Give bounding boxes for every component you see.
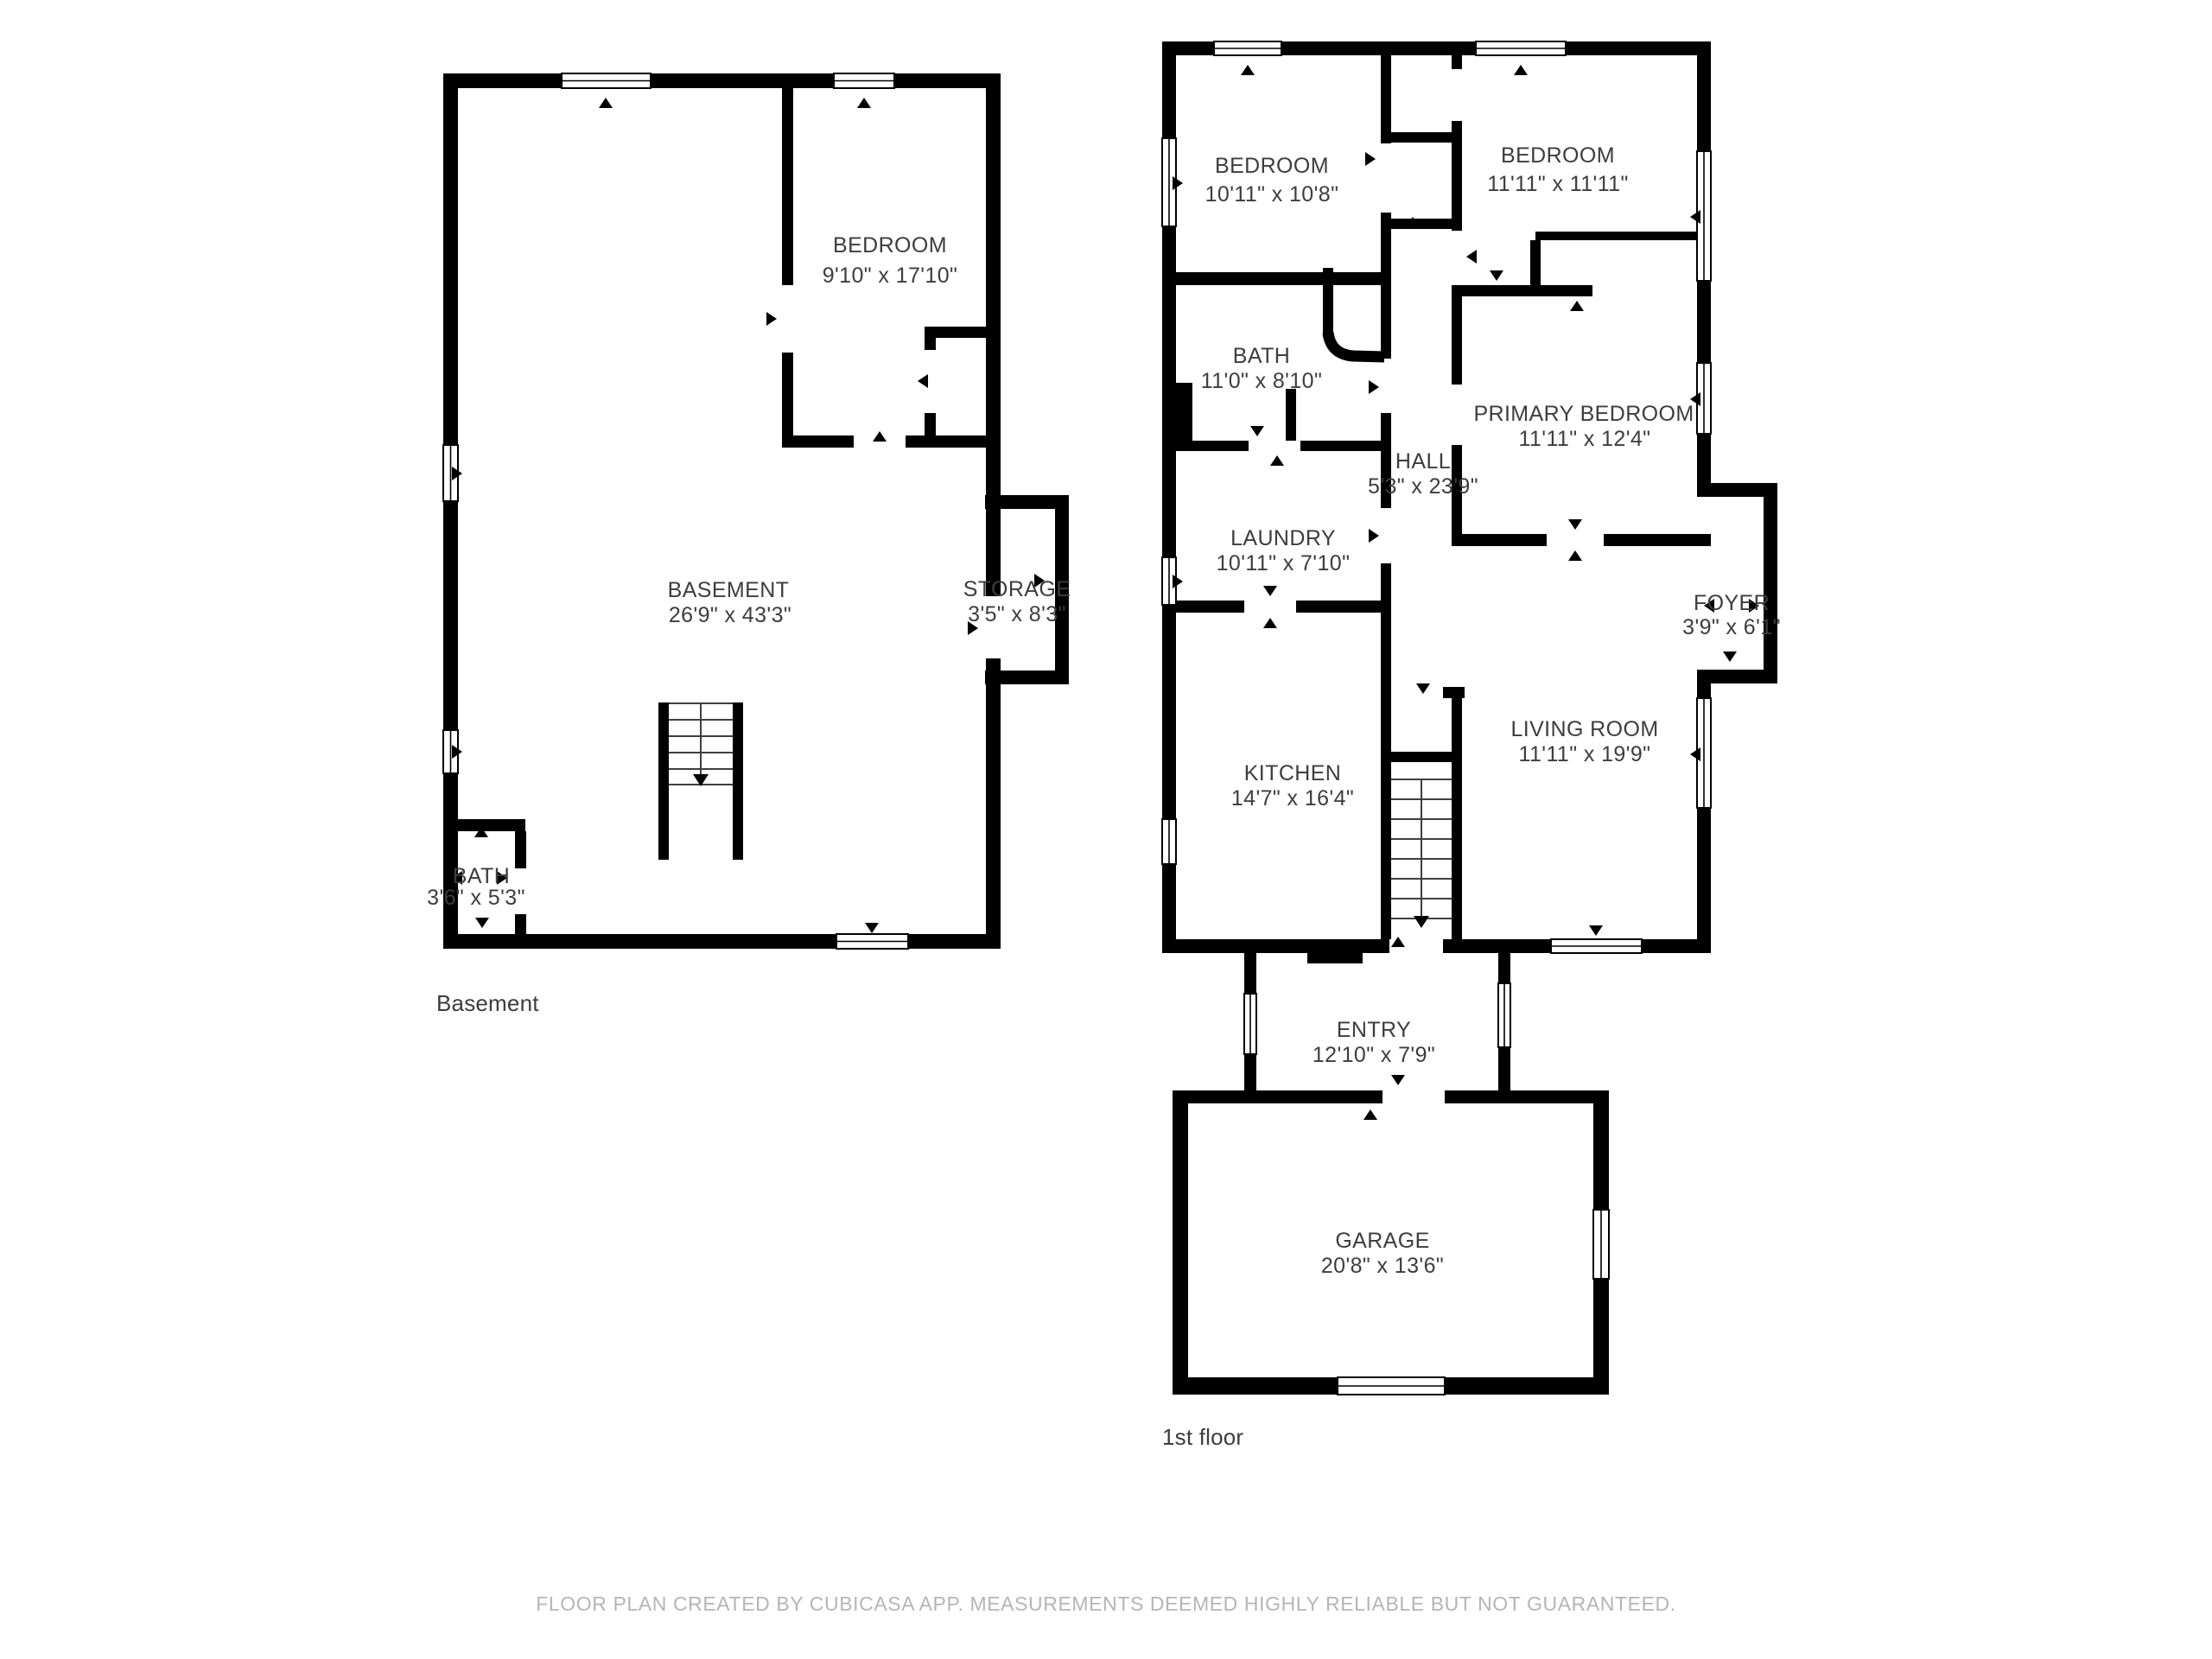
room-label-kitchen: KITCHEN — [1244, 761, 1342, 785]
room-label-laundry: LAUNDRY — [1230, 526, 1336, 550]
first-floor-plan: BEDROOM 10'11" x 10'8" BEDROOM 11'11" x … — [1162, 41, 1781, 1450]
room-dims-living-room: 11'11" x 19'9" — [1519, 742, 1651, 766]
room-dims-bath-basement: 3'6" x 5'3" — [427, 886, 525, 910]
basement-caption: Basement — [436, 990, 539, 1016]
room-label-storage: STORAGE — [963, 577, 1071, 601]
window — [1244, 994, 1256, 1054]
window — [1498, 983, 1510, 1047]
room-dims-hall: 5'3" x 23'9" — [1368, 474, 1478, 499]
room-label-garage: GARAGE — [1335, 1229, 1429, 1253]
room-label-bath-basement: BATH — [453, 864, 510, 888]
room-dims-kitchen: 14'7" x 16'4" — [1231, 786, 1354, 810]
garage-door — [1338, 1377, 1445, 1395]
room-dims-bedroom-1: 10'11" x 10'8" — [1205, 182, 1339, 207]
first-floor-caption: 1st floor — [1162, 1424, 1243, 1450]
room-dims-bedroom: 9'10" x 17'10" — [823, 264, 958, 288]
room-dims-storage: 3'5" x 8'3" — [968, 602, 1066, 626]
window — [1551, 939, 1642, 953]
window — [1214, 41, 1281, 55]
footer-attribution: FLOOR PLAN CREATED BY CUBICASA APP. MEAS… — [536, 1592, 1676, 1615]
room-label-primary-bedroom: PRIMARY BEDROOM — [1473, 402, 1694, 426]
first-floor-outer-walls — [1162, 41, 1777, 963]
floor-plan-canvas: BEDROOM 9'10" x 17'10" BASEMENT 26'9" x … — [0, 0, 2212, 1659]
basement-plan: BEDROOM 9'10" x 17'10" BASEMENT 26'9" x … — [427, 73, 1071, 1016]
room-label-basement: BASEMENT — [668, 578, 790, 602]
window — [1476, 41, 1566, 55]
basement-outer-walls — [443, 73, 1001, 949]
room-dims-laundry: 10'11" x 7'10" — [1217, 551, 1351, 575]
basement-interior-walls — [443, 88, 1069, 934]
room-label-hall: HALL — [1395, 449, 1451, 474]
room-label-living-room: LIVING ROOM — [1510, 717, 1658, 741]
basement-staircase — [658, 702, 743, 860]
room-label-entry: ENTRY — [1337, 1018, 1411, 1042]
basement-windows — [443, 73, 908, 949]
room-dims-bedroom-2: 11'11" x 11'11" — [1487, 172, 1629, 196]
room-dims-basement: 26'9" x 43'3" — [669, 603, 791, 627]
first-floor-room-labels: BEDROOM 10'11" x 10'8" BEDROOM 11'11" x … — [1201, 143, 1781, 1278]
basement-door-window-markers — [452, 98, 1045, 933]
first-floor-door-window-markers — [1173, 65, 1759, 1120]
room-dims-entry: 12'10" x 7'9" — [1313, 1043, 1435, 1067]
room-label-bath-first: BATH — [1233, 344, 1290, 368]
room-label-bedroom-2: BEDROOM — [1501, 143, 1615, 168]
room-label-bedroom-1: BEDROOM — [1215, 154, 1329, 178]
room-dims-bath-first: 11'0" x 8'10" — [1201, 369, 1322, 393]
window — [1593, 1210, 1609, 1279]
room-label-foyer: FOYER — [1694, 591, 1770, 615]
room-dims-garage: 20'8" x 13'6" — [1321, 1254, 1444, 1278]
window — [562, 73, 651, 88]
window — [836, 934, 908, 949]
room-dims-primary-bedroom: 11'11" x 12'4" — [1519, 427, 1651, 451]
room-label-bedroom: BEDROOM — [833, 233, 947, 257]
window — [834, 73, 894, 88]
first-floor-staircase — [1391, 779, 1452, 928]
window — [1162, 819, 1176, 864]
room-dims-foyer: 3'9" x 6'1" — [1682, 615, 1781, 639]
